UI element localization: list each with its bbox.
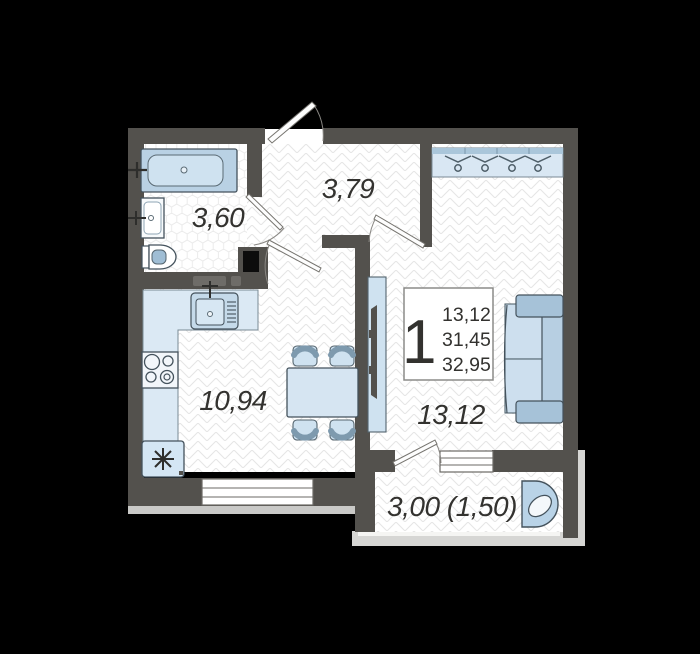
info-box: 1 13,12 31,45 32,95 xyxy=(402,288,493,380)
kitchen-window xyxy=(202,479,313,505)
area-line3: 32,95 xyxy=(442,354,491,376)
fridge xyxy=(142,441,184,477)
wall-hallway-stub xyxy=(420,143,432,247)
toilet xyxy=(142,245,176,269)
wall-balcony-left xyxy=(355,472,375,532)
snowflake-icon xyxy=(152,448,174,470)
shaft-opening xyxy=(243,251,259,272)
wall-bathroom-bottom xyxy=(128,272,188,289)
balcony-window xyxy=(440,451,493,472)
area-line2: 31,45 xyxy=(442,329,491,351)
wall-bathroom-right xyxy=(247,128,262,197)
wall-room-balcony-left xyxy=(355,450,395,472)
wall-top-left xyxy=(128,128,265,144)
wardrobe xyxy=(432,148,563,177)
stove xyxy=(142,352,178,388)
kitchen-area-label: 10,94 xyxy=(199,385,267,416)
wall-room-balcony-right xyxy=(492,450,563,472)
balcony-area-label: 3,00 (1,50) xyxy=(387,491,517,522)
area-line1: 13,12 xyxy=(442,304,491,326)
tv xyxy=(371,305,377,399)
floor-plan: 1 13,12 31,45 32,95 3,60 3,79 10,94 13,1… xyxy=(0,0,700,654)
dining-table xyxy=(287,368,358,417)
wall-right xyxy=(563,128,578,538)
floor-plan-canvas: 1 13,12 31,45 32,95 3,60 3,79 10,94 13,1… xyxy=(0,0,700,654)
bathroom-area-label: 3,60 xyxy=(192,202,245,233)
sofa xyxy=(505,295,564,423)
wall-hallway-kitchen xyxy=(322,235,370,248)
wall-top-right xyxy=(323,128,578,144)
bathtub xyxy=(128,149,237,192)
chair xyxy=(293,420,317,440)
hallway-area-label: 3,79 xyxy=(322,173,375,204)
tv-stand xyxy=(368,277,386,432)
room-area-label: 13,12 xyxy=(417,399,485,430)
chair xyxy=(330,346,354,366)
chair xyxy=(330,420,354,440)
rooms-count: 1 xyxy=(402,308,436,377)
chair xyxy=(293,346,317,366)
